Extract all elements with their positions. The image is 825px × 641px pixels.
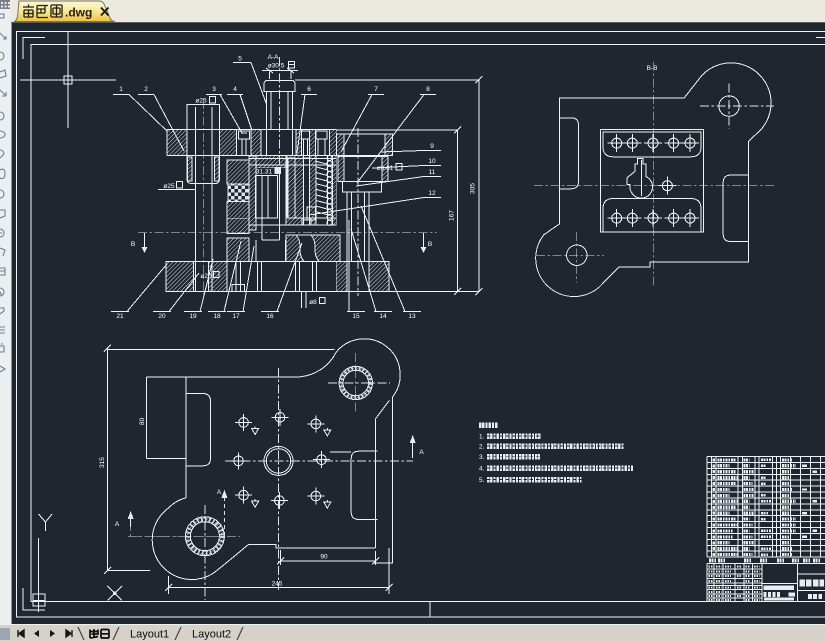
svg-text:12: 12 [428,190,436,197]
svg-text:4.: 4. [479,466,485,473]
svg-text:90: 90 [320,554,328,561]
svg-text:31.31: 31.31 [256,169,273,176]
svg-text:9: 9 [430,143,434,150]
svg-text:18: 18 [213,313,221,320]
svg-text:B-B: B-B [647,65,658,72]
svg-text:A: A [115,521,120,528]
svg-text:ø25: ø25 [163,183,175,190]
svg-text:B: B [428,241,432,248]
svg-text:14: 14 [379,313,387,320]
svg-text:2.: 2. [479,444,485,451]
svg-text:315: 315 [99,457,106,468]
svg-text:4: 4 [233,86,237,93]
svg-text:80: 80 [139,417,146,425]
svg-text:20: 20 [158,313,166,320]
svg-text:A: A [217,489,222,496]
svg-text:5.: 5. [479,477,485,484]
svg-text:21: 21 [116,313,124,320]
svg-text:5: 5 [238,56,242,63]
svg-text:1.: 1. [479,434,485,441]
svg-text:15: 15 [352,313,360,320]
svg-text:10: 10 [428,158,436,165]
svg-text:B: B [131,241,135,248]
svg-text:3.: 3. [479,454,485,461]
svg-text:ø30.5: ø30.5 [268,63,285,70]
svg-text:167: 167 [449,210,456,221]
svg-text:ø20: ø20 [200,273,212,280]
svg-text:19: 19 [189,313,197,320]
svg-text:7: 7 [374,86,378,93]
svg-text:A-A: A-A [268,54,280,61]
svg-text:3: 3 [212,86,216,93]
svg-text:2: 2 [144,86,148,93]
svg-text:13: 13 [408,313,416,320]
svg-text:1: 1 [119,86,123,93]
svg-text:A: A [419,449,424,456]
svg-text:17: 17 [232,313,240,320]
svg-text:16: 16 [266,313,274,320]
svg-text:245: 245 [272,581,283,588]
svg-text:6: 6 [307,86,311,93]
svg-text:ø25: ø25 [195,98,207,105]
svg-text:305: 305 [470,183,477,194]
svg-text:11: 11 [429,169,436,176]
svg-text:8: 8 [426,86,430,93]
svg-text:ø8: ø8 [309,299,317,306]
